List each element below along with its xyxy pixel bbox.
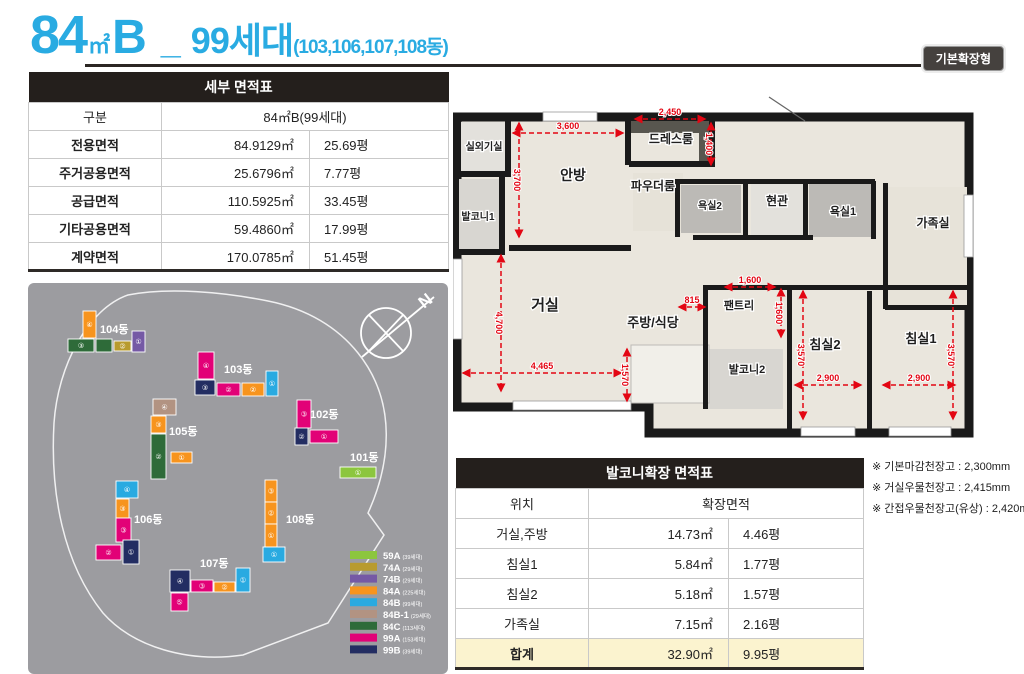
floor-plan: 3,6003,7002,4501,4004,7004,4651,5708151,… xyxy=(453,95,1023,445)
detail-area-table: 세부 면적표 구분 84㎡B(99세대) 전용면적84.9129㎡25.69평주… xyxy=(28,72,449,272)
row-label: 침실1 xyxy=(456,549,589,579)
title-households: 99세대 xyxy=(191,12,293,64)
table-row: 공급면적110.5925㎡33.45평 xyxy=(29,187,449,215)
detail-col-header: 구분 xyxy=(29,103,162,131)
dimension-label: 1,600 xyxy=(774,302,784,325)
room-label: 발코니2 xyxy=(729,362,765,376)
table-row: 침실25.18㎡1.57평 xyxy=(456,579,864,609)
value-sqm: 84.9129㎡ xyxy=(162,131,310,159)
value-sqm: 14.73㎡ xyxy=(589,519,729,549)
unit-number: ② xyxy=(119,344,125,351)
value-pyeong: 25.69평 xyxy=(310,131,449,159)
unit-number: ① xyxy=(355,469,361,477)
title-building-numbers: (103,106,107,108동) xyxy=(293,32,448,59)
unit-number: ④ xyxy=(124,486,130,494)
unit-number: ③ xyxy=(78,342,84,350)
value-sqm: 7.15㎡ xyxy=(589,609,729,639)
unit-number: ② xyxy=(250,387,256,394)
note-line: ※ 거실우물천장고 : 2,415mm xyxy=(872,478,1024,499)
table-row: 기타공용면적59.4860㎡17.99평 xyxy=(29,215,449,243)
row-label: 주거공용면적 xyxy=(29,159,162,187)
dimension-label: 1,600 xyxy=(739,275,762,285)
value-sqm: 32.90㎡ xyxy=(589,639,729,669)
dimension-label: 1,570 xyxy=(620,364,630,387)
value-sqm: 59.4860㎡ xyxy=(162,215,310,243)
building-label: 106동 xyxy=(134,513,162,526)
note-line: ※ 간접우물천장고(유상) : 2,420mm xyxy=(872,499,1024,520)
room-label: 가족실 xyxy=(916,215,949,230)
title-area-unit: ㎡ xyxy=(88,28,110,60)
value-pyeong: 7.77평 xyxy=(310,159,449,187)
room-label: 팬트리 xyxy=(724,298,754,312)
row-label: 계약면적 xyxy=(29,243,162,271)
table-row: 가족실7.15㎡2.16평 xyxy=(456,609,864,639)
unit-number: ③ xyxy=(155,421,161,429)
dimension-label: 3,700 xyxy=(512,169,522,192)
table-row: 거실,주방14.73㎡4.46평 xyxy=(456,519,864,549)
dimension-label: 2,900 xyxy=(908,373,931,383)
unit-number: ④ xyxy=(86,321,92,329)
dimension-label: 815 xyxy=(684,295,699,305)
value-pyeong: 17.99평 xyxy=(310,215,449,243)
balcony-col-value-header: 확장면적 xyxy=(589,489,864,519)
value-pyeong: 1.77평 xyxy=(729,549,864,579)
legend-swatch xyxy=(350,645,377,653)
legend-swatch xyxy=(350,551,377,559)
table-row: 합계32.90㎡9.95평 xyxy=(456,639,864,669)
room-label: 실외기실 xyxy=(466,140,503,153)
value-pyeong: 4.46평 xyxy=(729,519,864,549)
brochure-page: 84 ㎡ B _ 99세대 (103,106,107,108동) 기본확장형 세… xyxy=(0,0,1024,674)
table-row: 전용면적84.9129㎡25.69평 xyxy=(29,131,449,159)
building-label: 105동 xyxy=(169,425,197,438)
table-row: 침실15.84㎡1.77평 xyxy=(456,549,864,579)
value-sqm: 25.6796㎡ xyxy=(162,159,310,187)
building-block xyxy=(96,339,112,352)
value-pyeong: 51.45평 xyxy=(310,243,449,271)
unit-number: ⑤ xyxy=(176,599,182,607)
unit-number: ① xyxy=(178,454,184,462)
room-label: 안방 xyxy=(560,167,586,183)
detail-col-value-header: 84㎡B(99세대) xyxy=(162,103,449,131)
balcony-expansion-table: 발코니확장 면적표 위치 확장면적 거실,주방14.73㎡4.46평침실15.8… xyxy=(455,458,864,670)
unit-number: ④ xyxy=(177,578,183,586)
legend-swatch xyxy=(350,634,377,642)
building-label: 107동 xyxy=(200,557,228,570)
value-sqm: 170.0785㎡ xyxy=(162,243,310,271)
unit-number: ① xyxy=(321,433,327,441)
room-label: 거실 xyxy=(531,297,559,314)
plan-type-badge: 기본확장형 xyxy=(923,46,1004,71)
site-map: ④③②①104동④③②②①103동③②①102동④③②①105동①101동④③③… xyxy=(28,283,448,674)
room-label: 침실2 xyxy=(809,337,840,352)
legend-swatch xyxy=(350,575,377,583)
table-row: 주거공용면적25.6796㎡7.77평 xyxy=(29,159,449,187)
unit-number: ③ xyxy=(119,505,125,513)
unit-number: ② xyxy=(155,454,161,461)
title-separator: _ xyxy=(161,20,181,62)
table-row: 계약면적170.0785㎡51.45평 xyxy=(29,243,449,271)
legend-swatch xyxy=(350,586,377,594)
balcony-col-header: 위치 xyxy=(456,489,589,519)
unit-number: ② xyxy=(225,387,231,394)
value-pyeong: 1.57평 xyxy=(729,579,864,609)
dimension-label: 4,700 xyxy=(494,312,504,335)
unit-number: ② xyxy=(221,585,227,592)
room-label: 발코니1 xyxy=(461,210,495,223)
dimension-label: 4,465 xyxy=(531,361,554,371)
unit-number: ① xyxy=(269,380,275,388)
legend-swatch xyxy=(350,610,377,618)
legend-swatch xyxy=(350,622,377,630)
unit-number: ① xyxy=(128,549,134,557)
building-label: 102동 xyxy=(310,408,338,421)
unit-number: ① xyxy=(240,577,246,585)
row-label: 기타공용면적 xyxy=(29,215,162,243)
dimension-label: 3,600 xyxy=(557,121,580,131)
detail-table-title: 세부 면적표 xyxy=(29,72,449,103)
unit-number: ④ xyxy=(161,404,167,412)
row-label: 침실2 xyxy=(456,579,589,609)
page-title: 84 ㎡ B _ 99세대 (103,106,107,108동) xyxy=(30,4,448,66)
unit-number: ③ xyxy=(202,384,208,392)
unit-number: ③ xyxy=(301,411,307,419)
room-label: 욕실1 xyxy=(830,204,856,218)
title-area-number: 84 xyxy=(30,4,86,66)
unit-number: ① xyxy=(135,338,141,346)
row-label: 공급면적 xyxy=(29,187,162,215)
unit-number: ② xyxy=(268,511,274,518)
unit-number: ② xyxy=(105,550,111,557)
room-label: 침실1 xyxy=(905,331,936,346)
dimension-label: 2,450 xyxy=(659,107,682,117)
dimension-label: 3,570 xyxy=(946,344,956,367)
value-pyeong: 9.95평 xyxy=(729,639,864,669)
unit-number: ① xyxy=(268,532,274,540)
unit-number: ③ xyxy=(120,527,126,535)
unit-number: ③ xyxy=(199,583,205,591)
building-label: 108동 xyxy=(286,513,314,526)
row-label: 합계 xyxy=(456,639,589,669)
value-pyeong: 2.16평 xyxy=(729,609,864,639)
room-label: 주방/식당 xyxy=(627,315,678,330)
dimension-label: 1,400 xyxy=(704,133,714,156)
dimension-label: 3,570 xyxy=(796,344,806,367)
building-label: 104동 xyxy=(100,323,128,336)
unit-number: ③ xyxy=(268,488,274,496)
unit-number: ④ xyxy=(203,362,209,370)
balcony-table-header-row: 위치 확장면적 xyxy=(456,489,864,519)
row-label: 가족실 xyxy=(456,609,589,639)
room-label: 파우더룸 xyxy=(631,178,675,193)
building-label: 103동 xyxy=(224,363,252,376)
title-plan-type: B xyxy=(112,10,147,65)
row-label: 전용면적 xyxy=(29,131,162,159)
value-sqm: 5.84㎡ xyxy=(589,549,729,579)
building-label: 101동 xyxy=(350,451,378,464)
row-label: 거실,주방 xyxy=(456,519,589,549)
value-sqm: 5.18㎡ xyxy=(589,579,729,609)
dimension-label: 2,900 xyxy=(817,373,840,383)
legend-swatch xyxy=(350,598,377,606)
value-sqm: 110.5925㎡ xyxy=(162,187,310,215)
detail-table-header-row: 구분 84㎡B(99세대) xyxy=(29,103,449,131)
ceiling-notes: ※ 기본마감천장고 : 2,300mm ※ 거실우물천장고 : 2,415mm … xyxy=(872,457,1024,520)
unit-number: ② xyxy=(298,434,304,441)
balcony-table-title: 발코니확장 면적표 xyxy=(456,458,864,489)
legend-swatch xyxy=(350,563,377,571)
room-label: 욕실2 xyxy=(698,199,722,212)
room-label: 현관 xyxy=(766,193,788,208)
value-pyeong: 33.45평 xyxy=(310,187,449,215)
note-line: ※ 기본마감천장고 : 2,300mm xyxy=(872,457,1024,478)
room-label: 드레스룸 xyxy=(649,131,693,146)
unit-number: ① xyxy=(271,551,277,559)
header-rule xyxy=(85,64,1005,67)
